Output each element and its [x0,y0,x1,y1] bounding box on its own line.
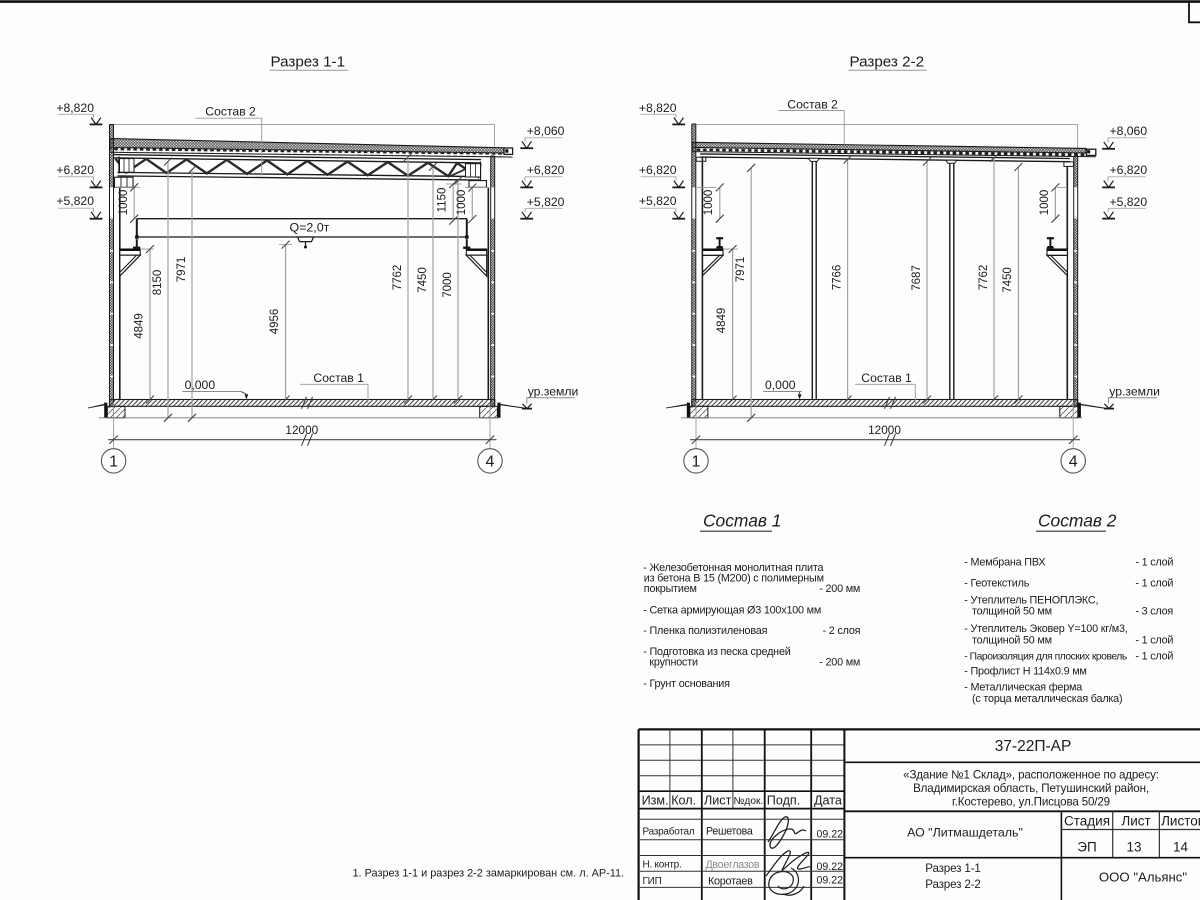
svg-text:09.22: 09.22 [817,875,844,887]
svg-text:- Профлист Н 114х0.9 мм: - Профлист Н 114х0.9 мм [964,666,1086,678]
svg-text:«Здание №1 Склад», расположенн: «Здание №1 Склад», расположенное по адре… [903,769,1159,782]
svg-text:ур.земли: ур.земли [528,385,579,399]
svg-text:Разработал: Разработал [643,826,695,838]
svg-text:Дата: Дата [814,793,842,807]
svg-text:4: 4 [1069,454,1078,471]
svg-text:7687: 7687 [911,265,923,291]
svg-text:4849: 4849 [716,308,728,334]
svg-text:+6,820: +6,820 [527,163,565,177]
svg-text:- 1 слой: - 1 слой [1135,557,1173,569]
svg-text:- Пленка полиэтиленовая: - Пленка полиэтиленовая [643,625,767,637]
svg-text:Состав 2: Состав 2 [1038,511,1117,531]
svg-text:1150: 1150 [437,188,449,213]
svg-text:Подп.: Подп. [767,793,800,807]
svg-text:- 200 мм: - 200 мм [819,657,860,669]
svg-text:ГИП: ГИП [643,876,662,887]
svg-text:Коротаев: Коротаев [708,875,753,887]
svg-text:Лист: Лист [704,793,732,807]
svg-text:Листов: Листов [1161,814,1200,829]
svg-text:1000: 1000 [1039,190,1051,216]
svg-text:4849: 4849 [134,313,146,339]
svg-text:7000: 7000 [442,272,454,298]
svg-text:№док.: №док. [734,796,764,807]
svg-text:1: 1 [692,454,701,471]
svg-text:+8,820: +8,820 [639,101,677,115]
svg-text:Разрез 1-1: Разрез 1-1 [925,862,980,875]
svg-text:09.22: 09.22 [817,829,844,841]
svg-text:4956: 4956 [269,309,281,335]
svg-text:(с торца металлическая балка): (с торца металлическая балка) [972,693,1122,705]
svg-text:7762: 7762 [392,265,404,291]
svg-text:- Пароизоляция для плоских кро: - Пароизоляция для плоских кровель [964,652,1127,663]
svg-text:0,000: 0,000 [185,378,216,392]
svg-text:7450: 7450 [1002,267,1014,293]
svg-text:- 1 слой: - 1 слой [1135,578,1173,590]
svg-text:+6,820: +6,820 [639,163,677,177]
svg-text:- 1 слой: - 1 слой [1135,635,1173,647]
svg-text:ООО "Альянс": ООО "Альянс" [1099,870,1187,885]
svg-text:Изм.: Изм. [642,793,669,807]
svg-text:Состав 1: Состав 1 [313,371,364,385]
svg-text:- 3 слоя: - 3 слоя [1135,606,1173,618]
svg-text:Q=2,0т: Q=2,0т [290,221,330,235]
svg-text:+8,820: +8,820 [56,101,94,115]
svg-text:- Металлическая ферма: - Металлическая ферма [964,682,1082,694]
svg-text:- 2 слоя: - 2 слоя [823,625,861,637]
svg-text:Кол.: Кол. [671,793,696,807]
svg-text:12000: 12000 [285,423,318,437]
svg-text:ур.земли: ур.земли [1109,385,1160,399]
svg-text:+5,820: +5,820 [1110,195,1148,209]
svg-text:- Утеплитель Эковер Y=100 кг/м: - Утеплитель Эковер Y=100 кг/м3, [964,623,1127,635]
svg-text:1000: 1000 [456,190,468,216]
svg-text:12000: 12000 [868,423,901,437]
svg-text:1. Разрез 1-1 и разрез 2-2 зам: 1. Разрез 1-1 и разрез 2-2 замаркирован … [353,868,625,880]
svg-text:Разрез 1-1: Разрез 1-1 [271,54,346,71]
svg-text:г.Костерево, ул.Писцова 50/29: г.Костерево, ул.Писцова 50/29 [952,796,1110,809]
svg-text:+5,820: +5,820 [527,195,565,209]
svg-text:ЭП: ЭП [1077,840,1096,855]
svg-text:- Грунт основания: - Грунт основания [643,678,730,690]
svg-text:Стадия: Стадия [1064,814,1110,829]
svg-text:+5,820: +5,820 [639,194,677,208]
svg-text:толщиной 50 мм: толщиной 50 мм [972,635,1052,647]
svg-text:- 1 слой: - 1 слой [1135,651,1173,663]
svg-text:Решетова: Решетова [706,825,753,837]
svg-text:+6,820: +6,820 [1110,163,1148,177]
svg-text:крупности: крупности [649,657,698,669]
svg-text:7971: 7971 [176,257,188,283]
svg-text:толщиной 50 мм: толщиной 50 мм [972,606,1052,618]
svg-text:4: 4 [486,454,495,471]
svg-text:- Геотекстиль: - Геотекстиль [964,578,1029,590]
svg-text:Состав 1: Состав 1 [861,371,912,385]
svg-text:Двоеглазов: Двоеглазов [706,859,760,871]
svg-text:Разрез 2-2: Разрез 2-2 [850,54,925,71]
svg-text:Состав 2: Состав 2 [787,97,838,111]
svg-text:АО "Литмашдеталь": АО "Литмашдеталь" [907,826,1023,840]
svg-text:1: 1 [109,454,118,471]
svg-text:- Сетка армирующая Ø3 100х100: - Сетка армирующая Ø3 100х100 мм [643,604,821,616]
svg-text:- 200 мм: - 200 мм [819,583,860,595]
svg-text:8150: 8150 [152,270,164,296]
svg-text:Лист: Лист [1121,814,1150,829]
svg-text:Разрез 2-2: Разрез 2-2 [925,878,980,891]
svg-text:+8,060: +8,060 [527,124,565,138]
svg-text:37-22П-АР: 37-22П-АР [995,738,1072,755]
svg-text:+5,820: +5,820 [56,194,94,208]
svg-text:1000: 1000 [703,190,715,216]
svg-text:7766: 7766 [831,265,843,291]
svg-text:+6,820: +6,820 [56,163,94,177]
svg-text:Н. контр.: Н. контр. [643,859,682,870]
svg-text:+8,060: +8,060 [1110,124,1148,138]
svg-text:покрытием: покрытием [644,583,697,595]
svg-text:7971: 7971 [735,257,747,283]
svg-text:Состав 2: Состав 2 [205,104,256,118]
svg-text:14: 14 [1173,840,1189,855]
svg-text:0,000: 0,000 [765,378,796,392]
svg-text:13: 13 [1126,840,1141,855]
svg-text:Владимирская область, Петушинс: Владимирская область, Петушинский район, [913,782,1149,795]
svg-text:7450: 7450 [417,267,429,293]
svg-text:- Мембрана ПВХ: - Мембрана ПВХ [964,557,1045,569]
svg-text:Состав 1: Состав 1 [703,511,781,531]
svg-text:09.22: 09.22 [817,861,844,873]
svg-text:7762: 7762 [978,265,990,291]
svg-text:1000: 1000 [118,190,130,216]
